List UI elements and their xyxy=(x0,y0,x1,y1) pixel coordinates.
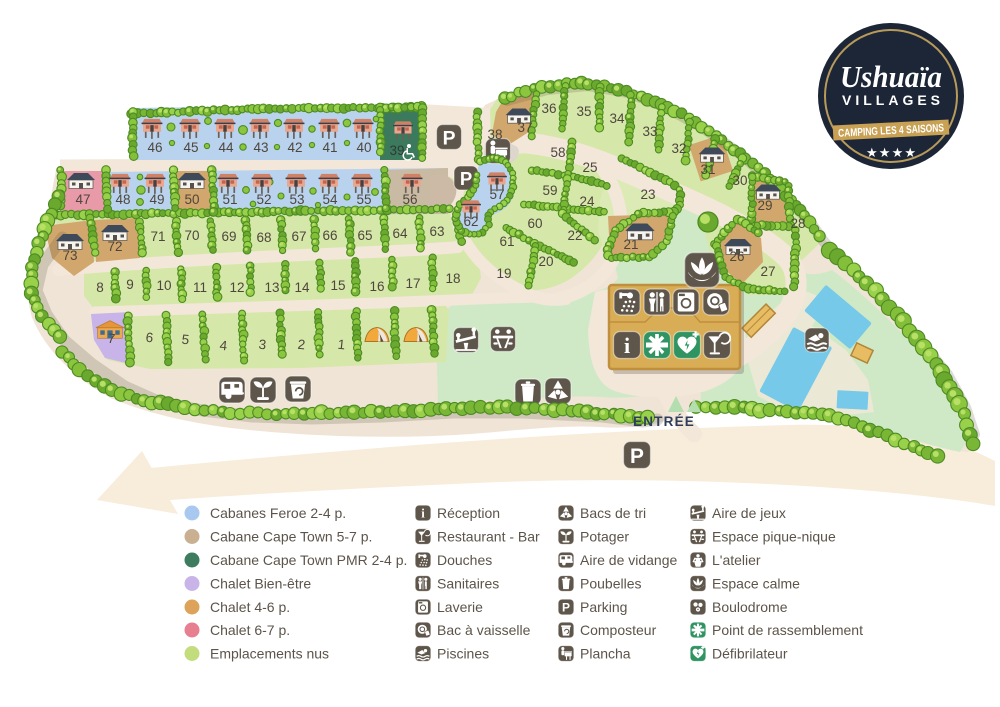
svg-text:9: 9 xyxy=(126,277,134,292)
svg-text:Chalet 6-7 p.: Chalet 6-7 p. xyxy=(210,622,290,638)
svg-text:66: 66 xyxy=(322,228,337,243)
svg-text:Aire de vidange: Aire de vidange xyxy=(580,552,678,568)
svg-text:7: 7 xyxy=(107,331,116,347)
svg-text:Chalet Bien-être: Chalet Bien-être xyxy=(210,576,311,592)
svg-text:Poubelles: Poubelles xyxy=(580,576,642,592)
svg-text:★★★★: ★★★★ xyxy=(866,145,916,160)
svg-text:37: 37 xyxy=(517,120,532,135)
svg-text:10: 10 xyxy=(156,278,171,293)
svg-text:Bacs de tri: Bacs de tri xyxy=(580,505,646,521)
svg-text:Cabane Cape Town PMR 2-4 p.: Cabane Cape Town PMR 2-4 p. xyxy=(210,552,407,568)
svg-text:1: 1 xyxy=(337,337,346,353)
svg-text:32: 32 xyxy=(671,141,686,156)
svg-text:25: 25 xyxy=(582,160,597,175)
svg-text:46: 46 xyxy=(147,140,162,155)
svg-text:58: 58 xyxy=(550,145,565,160)
svg-text:Cabane Cape Town 5-7 p.: Cabane Cape Town 5-7 p. xyxy=(210,529,372,545)
svg-text:24: 24 xyxy=(579,194,595,209)
svg-text:Défibrilateur: Défibrilateur xyxy=(712,646,788,662)
svg-text:Ushuaïa: Ushuaïa xyxy=(840,59,942,94)
svg-text:57: 57 xyxy=(489,187,504,202)
svg-text:Composteur: Composteur xyxy=(580,622,657,638)
svg-text:P: P xyxy=(460,168,472,189)
svg-text:21: 21 xyxy=(623,237,638,252)
svg-text:Espace calme: Espace calme xyxy=(712,576,800,592)
svg-text:Sanitaires: Sanitaires xyxy=(437,576,499,592)
svg-text:42: 42 xyxy=(287,140,302,155)
svg-text:60: 60 xyxy=(527,216,542,231)
svg-text:27: 27 xyxy=(760,264,775,279)
svg-text:73: 73 xyxy=(62,248,77,263)
svg-text:Cabanes Feroe 2-4 p.: Cabanes Feroe 2-4 p. xyxy=(210,505,346,521)
svg-text:P: P xyxy=(443,128,456,149)
svg-text:VILLAGES: VILLAGES xyxy=(842,92,940,108)
svg-text:Restaurant - Bar: Restaurant - Bar xyxy=(437,529,540,545)
svg-text:33: 33 xyxy=(642,124,657,139)
svg-text:38: 38 xyxy=(487,127,502,142)
svg-text:65: 65 xyxy=(357,228,372,243)
svg-text:68: 68 xyxy=(256,230,271,245)
svg-text:55: 55 xyxy=(356,192,371,207)
svg-text:43: 43 xyxy=(253,140,268,155)
svg-text:20: 20 xyxy=(538,254,553,269)
svg-text:35: 35 xyxy=(576,104,591,119)
svg-text:44: 44 xyxy=(218,140,234,155)
svg-text:18: 18 xyxy=(445,271,460,286)
svg-text:36: 36 xyxy=(541,101,556,116)
svg-text:51: 51 xyxy=(222,192,237,207)
svg-text:i: i xyxy=(624,333,630,358)
svg-text:69: 69 xyxy=(221,229,236,244)
svg-text:Parking: Parking xyxy=(580,599,627,615)
svg-text:23: 23 xyxy=(640,187,655,202)
svg-text:15: 15 xyxy=(330,278,345,293)
svg-text:29: 29 xyxy=(757,198,772,213)
svg-text:2: 2 xyxy=(297,337,306,353)
svg-text:8: 8 xyxy=(96,280,104,295)
svg-text:Bac à vaisselle: Bac à vaisselle xyxy=(437,622,531,638)
svg-text:22: 22 xyxy=(567,228,582,243)
svg-text:ENTRÉE: ENTRÉE xyxy=(633,414,695,429)
svg-text:39: 39 xyxy=(389,143,404,158)
svg-text:Potager: Potager xyxy=(580,529,629,545)
svg-text:41: 41 xyxy=(322,140,337,155)
svg-text:6: 6 xyxy=(145,330,154,346)
svg-text:64: 64 xyxy=(392,226,408,241)
svg-text:Espace pique-nique: Espace pique-nique xyxy=(712,529,836,545)
svg-text:Boulodrome: Boulodrome xyxy=(712,599,788,615)
svg-text:34: 34 xyxy=(609,111,625,126)
svg-text:Réception: Réception xyxy=(437,505,500,521)
svg-text:Aire de jeux: Aire de jeux xyxy=(712,505,786,521)
svg-text:53: 53 xyxy=(289,192,304,207)
svg-text:47: 47 xyxy=(75,192,90,207)
svg-text:54: 54 xyxy=(322,192,338,207)
svg-text:16: 16 xyxy=(369,279,384,294)
svg-text:19: 19 xyxy=(496,266,511,281)
svg-text:5: 5 xyxy=(181,332,190,348)
svg-text:L'atelier: L'atelier xyxy=(712,552,761,568)
svg-text:13: 13 xyxy=(264,280,279,295)
svg-text:Point de rassemblement: Point de rassemblement xyxy=(712,622,863,638)
svg-text:i: i xyxy=(421,507,425,521)
svg-text:48: 48 xyxy=(115,192,130,207)
svg-text:31: 31 xyxy=(700,162,715,177)
svg-text:62: 62 xyxy=(463,214,478,229)
svg-text:56: 56 xyxy=(402,192,417,207)
svg-text:45: 45 xyxy=(183,140,198,155)
svg-text:Emplacements nus: Emplacements nus xyxy=(210,646,329,662)
svg-text:P: P xyxy=(630,445,644,468)
svg-text:28: 28 xyxy=(790,216,805,231)
svg-text:26: 26 xyxy=(729,249,744,264)
svg-text:11: 11 xyxy=(193,280,207,295)
svg-text:61: 61 xyxy=(499,234,514,249)
svg-text:63: 63 xyxy=(429,224,444,239)
svg-text:Douches: Douches xyxy=(437,552,492,568)
svg-text:40: 40 xyxy=(356,140,371,155)
svg-text:P: P xyxy=(562,601,570,615)
svg-text:59: 59 xyxy=(542,183,557,198)
svg-text:72: 72 xyxy=(107,239,122,254)
svg-text:70: 70 xyxy=(184,228,199,243)
svg-text:67: 67 xyxy=(291,229,306,244)
svg-text:Laverie: Laverie xyxy=(437,599,483,615)
svg-text:17: 17 xyxy=(405,276,420,291)
svg-text:71: 71 xyxy=(150,229,165,244)
svg-text:12: 12 xyxy=(229,280,244,295)
svg-text:50: 50 xyxy=(184,192,199,207)
svg-text:14: 14 xyxy=(294,280,310,295)
svg-text:Plancha: Plancha xyxy=(580,646,631,662)
svg-text:52: 52 xyxy=(256,192,271,207)
svg-text:Piscines: Piscines xyxy=(437,646,489,662)
svg-text:49: 49 xyxy=(149,192,164,207)
svg-text:Chalet 4-6 p.: Chalet 4-6 p. xyxy=(210,599,290,615)
svg-text:30: 30 xyxy=(732,173,747,188)
svg-text:3: 3 xyxy=(258,337,267,353)
